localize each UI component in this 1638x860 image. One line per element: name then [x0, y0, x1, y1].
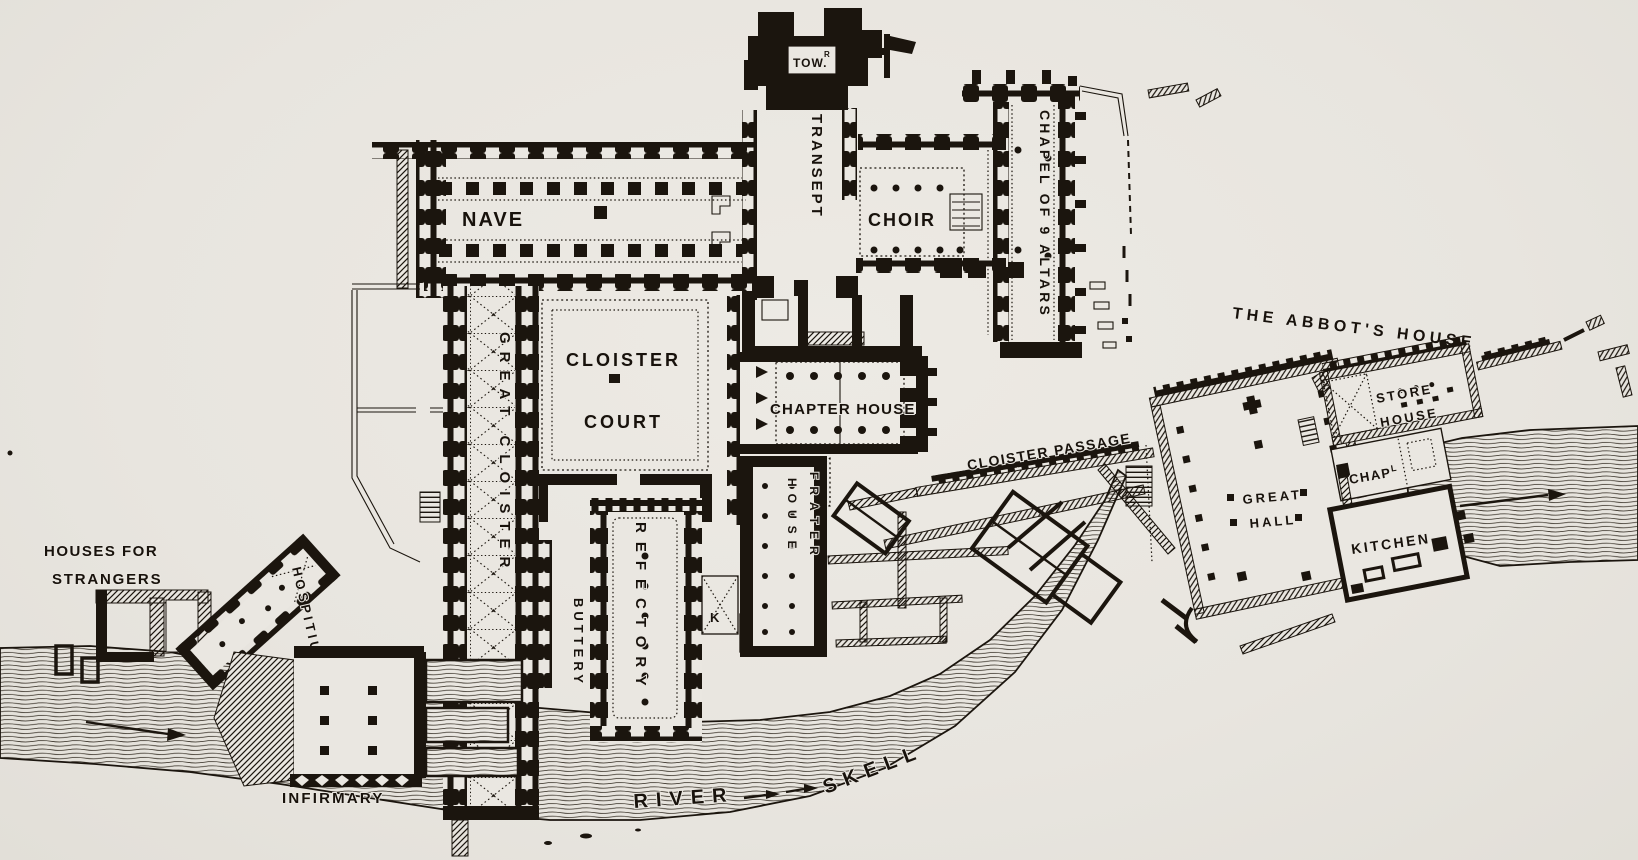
abbey-plan-drawing: NAVE TOW. R TRANSEPT CHOIR CHAPEL: [0, 0, 1638, 860]
altar-steps: [950, 194, 982, 230]
chapel-of-nine-altars: CHAPEL OF 9 ALTARS: [940, 70, 1086, 358]
nave: NAVE: [372, 140, 756, 298]
west-yard-walls: [352, 284, 452, 562]
cloister-court-label-line1: CLOISTER: [566, 350, 681, 370]
houses-for-strangers-label-line2: STRANGERS: [52, 571, 162, 588]
frater-house: FRATER HOUSE: [740, 456, 827, 657]
chapter-house-label: CHAPTER HOUSE: [770, 401, 916, 418]
cloister-court-label-line2: COURT: [584, 412, 663, 432]
tower-label: TOW.: [793, 56, 827, 70]
infirmary-bridge-rooms: [426, 660, 522, 776]
tower-label-superscript: R: [824, 50, 830, 59]
houses-for-strangers-label-line1: HOUSES FOR: [44, 543, 158, 560]
transept-label: TRANSEPT: [808, 114, 825, 219]
chapter-house: CHAPTER HOUSE: [740, 352, 937, 454]
choir-label: CHOIR: [868, 210, 936, 230]
great-cloister-label: GREAT CLOISTER: [496, 332, 513, 575]
precinct-fragments-northeast: [1080, 83, 1221, 348]
k-mark-label: K: [710, 610, 720, 625]
cloister-court-mark: [609, 374, 620, 383]
cloister-court: CLOISTER COURT: [542, 300, 708, 470]
galilee-porch: [397, 150, 408, 288]
tower: TOW. R: [744, 8, 916, 110]
frater-house-label-line1: FRATER: [807, 472, 821, 562]
frater-house-label-line2: HOUSE: [785, 478, 799, 556]
infirmary-label: INFIRMARY: [282, 790, 385, 807]
refectory-label: REFECTORY: [632, 522, 649, 695]
west-yard-stair: [420, 492, 440, 522]
choir: CHOIR: [856, 134, 1006, 335]
abbey-plan-page: NAVE TOW. R TRANSEPT CHOIR CHAPEL: [0, 0, 1638, 860]
refectory-block: BUTTERY REFECTORY: [536, 498, 702, 742]
chapel-of-nine-altars-label: CHAPEL OF 9 ALTARS: [1037, 110, 1053, 318]
transept: TRANSEPT: [742, 108, 858, 300]
buttery-label: BUTTERY: [571, 598, 586, 687]
nave-label: NAVE: [462, 209, 524, 231]
